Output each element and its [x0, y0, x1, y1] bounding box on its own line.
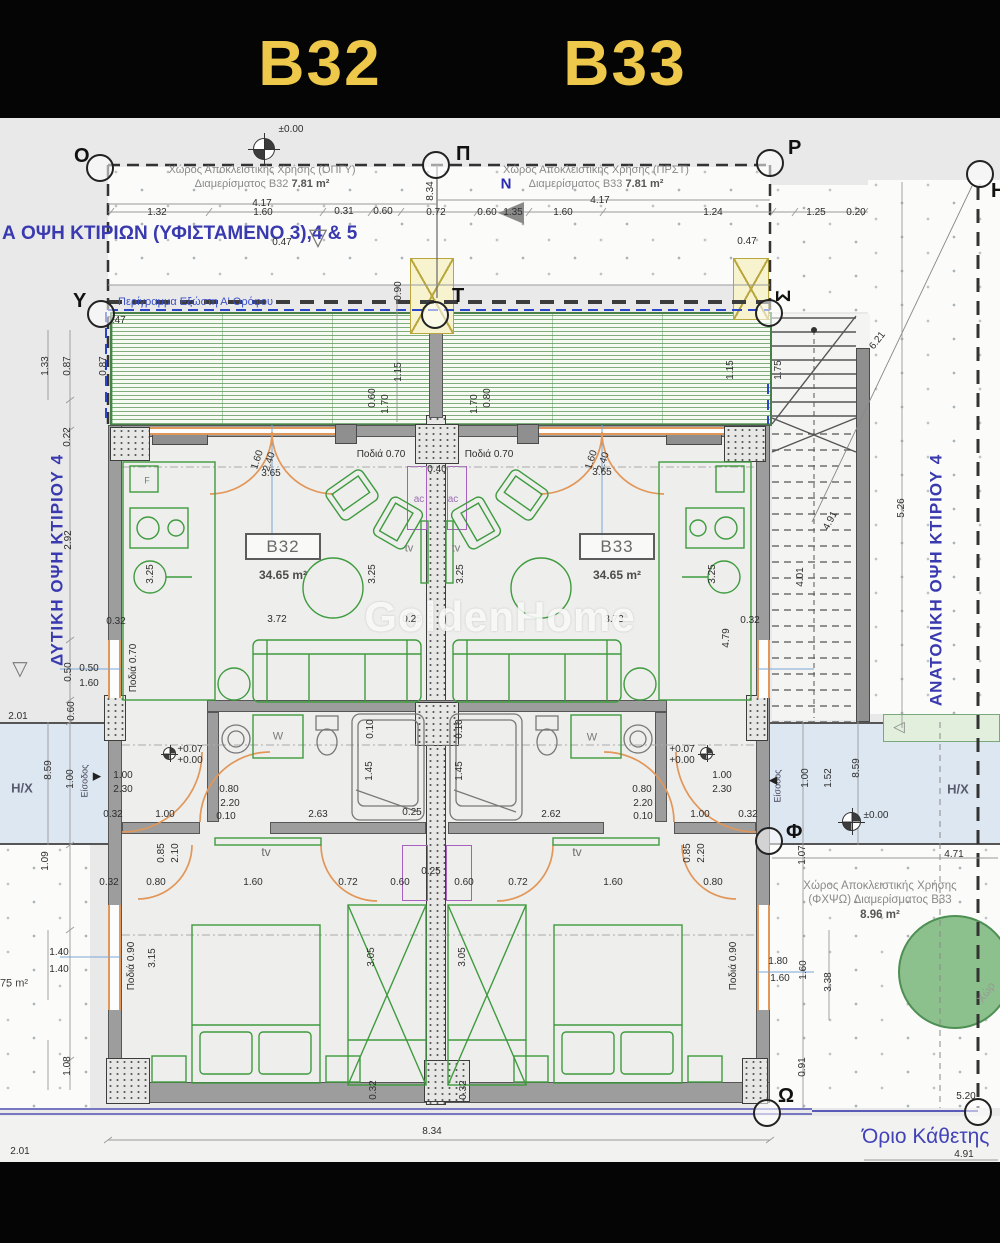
- window-left-bedroom: [108, 905, 121, 1010]
- boundary-purple-3: [812, 1110, 978, 1112]
- dim-label: 0.85: [157, 843, 167, 862]
- wall-bath-right: [655, 712, 667, 822]
- dim-label: 1.35: [503, 208, 522, 218]
- dim-label: 0.10: [455, 719, 465, 738]
- window-right-living: [757, 640, 770, 698]
- footer-bar: [0, 1162, 1000, 1243]
- dim-label: 2.63: [308, 810, 327, 820]
- dim-label: 1.00: [690, 810, 709, 820]
- dim-label: 8.34: [426, 181, 436, 200]
- grid-point-letter: Ρ: [788, 138, 801, 158]
- dim-label: 8.59: [44, 760, 54, 779]
- text-label: ac: [414, 495, 425, 505]
- room-label-b33: B33: [579, 533, 655, 560]
- dim-label: 0.32: [738, 810, 757, 820]
- dim-label: 0.60: [67, 701, 77, 720]
- text-label: ▶: [93, 772, 101, 783]
- dim-label: Ποδιά 0.70: [357, 450, 406, 460]
- grid-point-letter: Ω: [778, 1086, 794, 1106]
- dim-label: 0.32: [369, 1080, 379, 1099]
- dim-label: 0.91: [798, 1057, 808, 1076]
- dim-label: 2.01: [10, 1147, 29, 1157]
- dim-label: 0.87: [63, 356, 73, 375]
- dim-label: 0.10: [216, 812, 235, 822]
- column-ml: [104, 695, 126, 741]
- column-mc: [415, 702, 459, 746]
- grid-point-circle: [755, 827, 783, 855]
- text-label: ▽: [12, 659, 27, 679]
- text-label: F: [144, 477, 150, 486]
- dim-label: 3.25: [368, 564, 378, 583]
- column-br: [742, 1058, 768, 1104]
- dim-label: 1.15: [726, 360, 736, 379]
- grid-point-circle: [753, 1099, 781, 1127]
- excl-br-line1: Χώρος Αποκλειστικής Χρήσης: [770, 879, 990, 893]
- dim-label: 0.72: [426, 208, 445, 218]
- pier-top-3: [335, 424, 357, 444]
- dim-label: 0.72: [338, 878, 357, 888]
- dim-label: 0.80: [146, 878, 165, 888]
- dim-label: 1.00: [801, 768, 811, 787]
- dim-label: 1.75: [774, 360, 784, 379]
- grid-point-letter: Τ: [452, 286, 464, 306]
- floor-plan-screenshot: Χώρος Αποκλειστικής Χρήσης (ΟΠΓΥ) Διαμερ…: [0, 0, 1000, 1243]
- text-label: ac: [448, 495, 459, 505]
- excl-br-area: 8.96 m²: [770, 908, 990, 922]
- dim-label: 1.00: [712, 771, 731, 781]
- dim-label: 8.59: [852, 758, 862, 777]
- dim-label: 0.90: [394, 281, 404, 300]
- dim-label: 1.70: [381, 394, 391, 413]
- dim-label: +0.07: [669, 745, 694, 755]
- text-label: tv: [452, 544, 461, 555]
- dim-label: 3.72: [267, 615, 286, 625]
- grid-point-circle: [964, 1098, 992, 1126]
- dim-label: 1.60: [770, 974, 789, 984]
- dim-label: 4.01: [796, 567, 806, 586]
- grid-point-letter: Π: [456, 144, 470, 164]
- benchmark-icon: [842, 812, 861, 831]
- dim-label: 2.20: [697, 843, 707, 862]
- dim-label: 3.25: [456, 564, 466, 583]
- dim-label: 0.80: [632, 785, 651, 795]
- dim-label: 4.71: [944, 850, 963, 860]
- dim-label: 3.15: [148, 948, 158, 967]
- wall-bath-bottom-1: [122, 822, 200, 834]
- dim-label: 0.47: [272, 238, 291, 248]
- dim-label: 1.60: [253, 208, 272, 218]
- excl-tr-line1: Χώρος Αποκλειστικής Χρήσης (ΠΡΣΤ): [446, 164, 746, 178]
- dim-label: 1.60: [553, 208, 572, 218]
- dim-label: 3.25: [708, 564, 718, 583]
- dim-label: Ποδιά 0.70: [129, 644, 139, 693]
- grid-point-circle: [756, 149, 784, 177]
- west-elevation-note: ΔΥΤΙΚΗ ΟΨΗ ΚΤΙΡΙΟΥ 4: [49, 454, 66, 666]
- text-label: tv: [261, 846, 270, 858]
- benchmark-icon: [253, 138, 275, 160]
- dim-label: 1.32: [147, 208, 166, 218]
- dim-label: 0.80: [483, 388, 493, 407]
- exclusive-note-b33: Χώρος Αποκλειστικής Χρήσης (ΠΡΣΤ) Διαμερ…: [446, 164, 746, 192]
- dim-label: 1.52: [824, 768, 834, 787]
- grid-point-circle: [755, 299, 783, 327]
- dim-label: 2.62: [541, 810, 560, 820]
- boundary-purple-2: [0, 1113, 812, 1115]
- dim-label: 0.10: [366, 719, 376, 738]
- text-label: ◁: [893, 720, 905, 735]
- dim-label: 2.30: [712, 785, 731, 795]
- dim-label: 1.40: [49, 948, 68, 958]
- dim-label: 0.85: [683, 843, 693, 862]
- grid-point-circle: [422, 151, 450, 179]
- dim-label: 1.33: [41, 356, 51, 375]
- room-area-b32: 34.65 m²: [245, 568, 321, 582]
- text-label: W: [587, 733, 597, 744]
- dim-label: 1.25: [806, 208, 825, 218]
- grid-point-letter: Υ: [73, 291, 86, 311]
- dim-label: 1.24: [703, 208, 722, 218]
- dim-label: 2.10: [171, 843, 181, 862]
- dim-label: 0.25: [421, 867, 440, 877]
- dim-label: 1.00: [155, 810, 174, 820]
- dim-label: 2.92: [64, 530, 74, 549]
- window-left-living: [108, 640, 121, 698]
- dim-label: 0.50: [79, 664, 98, 674]
- grid-point-letter: Ο: [74, 146, 90, 166]
- text-label: Η/Χ: [11, 782, 33, 795]
- dim-label: 0.32: [103, 810, 122, 820]
- dim-label: 3.05: [367, 947, 377, 966]
- exclusive-note-br: Χώρος Αποκλειστικής Χρήσης (ΦΧΨΩ) Διαμερ…: [770, 879, 990, 922]
- wall-bath-bottom-4: [674, 822, 756, 834]
- dim-label: 2.01: [8, 712, 27, 722]
- dim-label: 4.79: [722, 628, 732, 647]
- text-label: tv: [572, 846, 581, 858]
- benchmark-icon: [700, 747, 713, 760]
- grid-point-circle: [87, 300, 115, 328]
- grid-point-letter: Σ: [774, 290, 794, 302]
- dim-label: 8.34: [422, 1127, 441, 1137]
- dim-label: +0.00: [669, 756, 694, 766]
- dim-label: 0.25: [402, 808, 421, 818]
- dim-label: 3.65: [261, 469, 280, 479]
- dim-label: 3.05: [458, 947, 468, 966]
- dim-label: 0.60: [390, 878, 409, 888]
- boundary-purple-1: [0, 1108, 812, 1110]
- grid-point-letter: Φ: [786, 822, 802, 842]
- dim-label: 5.26: [897, 498, 907, 517]
- wall-bath-bottom-2: [270, 822, 426, 834]
- dim-label: +0.07: [177, 745, 202, 755]
- closet-bedroom-right: [446, 845, 472, 901]
- text-label: Η/Χ: [947, 783, 969, 796]
- dim-label: Ποδιά 0.70: [465, 450, 514, 460]
- dim-label: 0.50: [64, 662, 74, 681]
- bottom-strip: [0, 1116, 1000, 1162]
- column-tc: [415, 424, 459, 464]
- grid-point-circle: [421, 301, 449, 329]
- dim-label: 0.20: [846, 208, 865, 218]
- column-tr: [724, 426, 766, 462]
- dim-label: 0.32: [459, 1080, 469, 1099]
- window-top-right: [539, 427, 724, 435]
- dim-label: 3.38: [824, 972, 834, 991]
- dim-label: 1.07: [798, 845, 808, 864]
- dim-label: 0.80: [703, 878, 722, 888]
- benchmark-icon: [163, 747, 176, 760]
- dim-label: 1.45: [455, 761, 465, 780]
- dim-label: 0.60: [373, 207, 392, 217]
- dim-label: 1.45: [365, 761, 375, 780]
- watermark: GoldenHome: [364, 593, 635, 641]
- dim-label: 1.60: [243, 878, 262, 888]
- exclusive-note-b32: Χώρος Αποκλειστικής Χρήσης (ΟΠΓΥ) Διαμερ…: [112, 164, 412, 192]
- tree-symbol: [898, 915, 1000, 1029]
- dim-label: 1.60: [79, 679, 98, 689]
- dim-label: 1.00: [113, 771, 132, 781]
- dim-label: 3.25: [146, 564, 156, 583]
- header-bar: B32 B33: [0, 0, 1000, 118]
- dim-label: 1.60: [603, 878, 622, 888]
- dim-label: ±0.00: [279, 125, 304, 135]
- text-label: 75 m²: [0, 979, 28, 990]
- dim-label: 0.32: [106, 617, 125, 627]
- dim-label: 0.87: [99, 356, 109, 375]
- dim-label: 1.09: [41, 851, 51, 870]
- text-label: W: [273, 732, 283, 743]
- text-label: Είσοδος: [81, 765, 90, 798]
- stair-wall: [856, 348, 870, 722]
- balcony-outline-note: Περίγραμμα Εξώστη Α' Ορόφου: [118, 297, 273, 308]
- dim-label: 0.60: [477, 208, 496, 218]
- dim-label: 1.08: [63, 1056, 73, 1075]
- pier-top-4: [517, 424, 539, 444]
- dim-label: ±0.00: [864, 811, 889, 821]
- dim-label: 1.60: [799, 960, 809, 979]
- excl-tl-line1: Χώρος Αποκλειστικής Χρήσης (ΟΠΓΥ): [112, 164, 412, 178]
- grid-point-letter: Η: [991, 181, 1000, 201]
- text-label: N: [501, 177, 512, 192]
- text-label: ◀: [769, 776, 777, 787]
- column-bl: [106, 1058, 150, 1104]
- boundary-note: Όριο Κάθετης: [862, 1126, 989, 1147]
- header-unit-b32: B32: [258, 26, 381, 100]
- east-elevation-note: ΑΝΑΤΟΛΙΚΗ ΟΨΗ ΚΤΙΡΙΟΥ 4: [928, 454, 945, 706]
- column-tl: [110, 427, 150, 461]
- dim-label: 4.17: [590, 196, 609, 206]
- text-label: ▽: [309, 226, 327, 250]
- grid-point-circle: [966, 160, 994, 188]
- room-area-b33: 34.65 m²: [579, 568, 655, 582]
- dim-label: Ποδιά 0.90: [127, 942, 137, 991]
- excl-tl-line2: Διαμερίσματος Β32 7.81 m²: [112, 178, 412, 192]
- wall-bath-bottom-3: [448, 822, 604, 834]
- dim-label: 0.32: [99, 878, 118, 888]
- dim-label: 0.60: [368, 388, 378, 407]
- dim-label: 3.65: [592, 468, 611, 478]
- dim-label: 0.80: [219, 785, 238, 795]
- dim-label: 0.72: [508, 878, 527, 888]
- dim-label: 1.15: [394, 362, 404, 381]
- dim-label: 0.60: [454, 878, 473, 888]
- dim-label: 0.22: [63, 427, 73, 446]
- elevation-note: Α ΟΨΗ ΚΤΙΡΙΩΝ (ΥΦΙΣΤΑΜΕΝΟ 3),4 & 5: [2, 224, 357, 243]
- dim-label: 0.40: [427, 465, 446, 475]
- excl-br-line2: (ΦΧΨΩ) Διαμερίσματος Β33: [770, 893, 990, 907]
- dim-label: Ποδιά 0.90: [729, 942, 739, 991]
- dim-label: 1.70: [470, 394, 480, 413]
- dim-label: +0.00: [177, 756, 202, 766]
- dim-label: 0.10: [633, 812, 652, 822]
- column-mr: [746, 695, 768, 741]
- dim-label: 4.91: [954, 1150, 973, 1160]
- wall-center-spine: [426, 415, 446, 1105]
- dim-label: 2.30: [113, 785, 132, 795]
- header-unit-b33: B33: [563, 26, 686, 100]
- dim-label: 1.80: [768, 957, 787, 967]
- west-yard-hatch: [0, 845, 90, 1108]
- dim-label: 0.32: [740, 616, 759, 626]
- dim-label: 1.00: [66, 769, 76, 788]
- text-label: tv: [405, 544, 414, 555]
- wall-bath-left: [207, 712, 219, 822]
- excl-tr-line2: Διαμερίσματος Β33 7.81 m²: [446, 178, 746, 192]
- dim-label: 2.20: [633, 799, 652, 809]
- dim-label: 2.20: [220, 799, 239, 809]
- dim-label: 0.47: [737, 237, 756, 247]
- dim-label: 1.40: [49, 965, 68, 975]
- dim-label: 0.31: [334, 207, 353, 217]
- room-label-b32: B32: [245, 533, 321, 560]
- grid-point-circle: [86, 154, 114, 182]
- window-top-left: [150, 427, 335, 435]
